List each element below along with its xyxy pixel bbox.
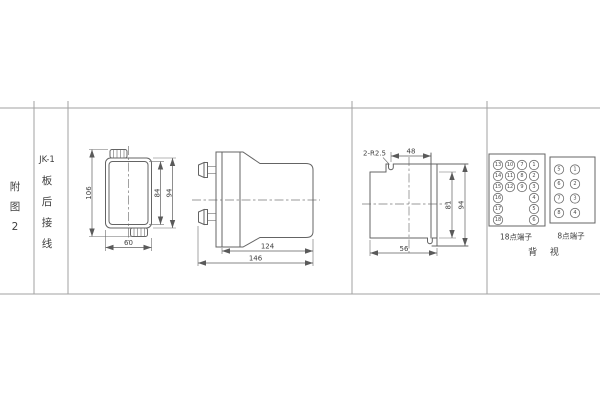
terminal-block-18-label: 18点端子 bbox=[500, 232, 533, 242]
front-view: 106 84 94 60 bbox=[85, 146, 176, 251]
dim-slot-span: 48 bbox=[407, 148, 416, 156]
technical-drawing: 附 图 2 JK-1 板 后 接 线 bbox=[0, 0, 600, 400]
terminal-pin: 3 bbox=[532, 184, 535, 190]
slot-note-leader bbox=[383, 158, 390, 165]
terminal-pin: 18 bbox=[495, 217, 501, 223]
figure-label-char: 图 bbox=[10, 201, 21, 213]
side-view-rear-plate bbox=[216, 152, 222, 247]
front-view-top-terminal bbox=[110, 150, 127, 159]
dim-body-height: 94 bbox=[166, 188, 174, 197]
terminal-pin: 2 bbox=[573, 181, 576, 187]
terminal-pin: 9 bbox=[520, 184, 523, 190]
dim-inner-height: 84 bbox=[154, 188, 162, 197]
terminal-8-circles: 5 6 7 8 1 2 3 4 bbox=[554, 165, 579, 218]
panel-view-outline bbox=[370, 153, 468, 246]
terminal-18-circles: 13 14 15 16 17 18 10 11 12 7 8 9 1 2 3 4… bbox=[493, 160, 538, 224]
terminal-pin: 2 bbox=[532, 173, 535, 179]
side-view-screw-bottom bbox=[199, 210, 217, 225]
front-view-bottom-terminal bbox=[131, 228, 148, 237]
terminal-pin: 16 bbox=[495, 195, 501, 201]
title-char: 板 bbox=[42, 174, 53, 187]
dim-width: 60 bbox=[124, 239, 133, 247]
terminal-pin: 7 bbox=[557, 196, 560, 202]
title-char: 后 bbox=[42, 196, 53, 208]
terminal-pin: 10 bbox=[507, 162, 513, 168]
panel-view: 48 2-R2.5 81 94 56 bbox=[362, 148, 468, 257]
model-code: JK-1 bbox=[38, 155, 55, 165]
slot-radius-note: 2-R2.5 bbox=[363, 150, 386, 158]
terminal-pin: 11 bbox=[507, 173, 513, 179]
terminal-block-8: 5 6 7 8 1 2 3 4 8点端子 bbox=[550, 157, 595, 241]
terminal-pin: 1 bbox=[532, 162, 535, 168]
rear-view-label: 背 视 bbox=[528, 246, 564, 258]
side-view-case bbox=[222, 152, 313, 247]
dim-total-height: 106 bbox=[85, 186, 93, 200]
page: 附 图 2 JK-1 板 后 接 线 bbox=[0, 0, 600, 400]
terminal-pin: 13 bbox=[495, 162, 501, 168]
terminal-block-8-label: 8点端子 bbox=[557, 231, 585, 241]
dim-width: 56 bbox=[400, 245, 409, 253]
terminal-pin: 6 bbox=[532, 217, 535, 223]
title-char: 接 bbox=[42, 216, 53, 229]
dim-outer-height: 94 bbox=[458, 200, 466, 209]
side-view-screw-top bbox=[199, 163, 217, 178]
dim-total-depth: 146 bbox=[249, 255, 263, 263]
figure-label-char: 2 bbox=[12, 221, 19, 233]
terminal-pin: 8 bbox=[520, 173, 523, 179]
terminal-pin: 17 bbox=[495, 206, 501, 212]
terminal-pin: 7 bbox=[520, 162, 523, 168]
terminal-pin: 15 bbox=[495, 184, 501, 190]
terminal-pin: 5 bbox=[557, 167, 560, 173]
terminal-block-18: 13 14 15 16 17 18 10 11 12 7 8 9 1 2 3 4… bbox=[489, 154, 545, 242]
terminal-pin: 4 bbox=[532, 195, 535, 201]
side-view: 124 146 bbox=[192, 152, 320, 266]
dim-inner-height: 81 bbox=[445, 201, 453, 210]
dim-body-depth: 124 bbox=[261, 243, 275, 251]
terminal-pin: 1 bbox=[573, 167, 576, 173]
terminal-pin: 6 bbox=[557, 181, 560, 187]
terminal-pin: 3 bbox=[573, 196, 576, 202]
terminal-pin: 14 bbox=[495, 173, 501, 179]
terminal-pin: 8 bbox=[557, 210, 560, 216]
drawing-title: JK-1 板 后 接 线 bbox=[38, 155, 55, 250]
title-char: 线 bbox=[42, 237, 53, 250]
figure-label: 附 图 2 bbox=[10, 180, 21, 233]
terminal-pin: 12 bbox=[507, 184, 513, 190]
terminal-pin: 5 bbox=[532, 206, 535, 212]
side-view-dimensions: 124 146 bbox=[198, 226, 313, 266]
figure-label-char: 附 bbox=[10, 180, 21, 193]
terminal-pin: 4 bbox=[573, 210, 576, 216]
